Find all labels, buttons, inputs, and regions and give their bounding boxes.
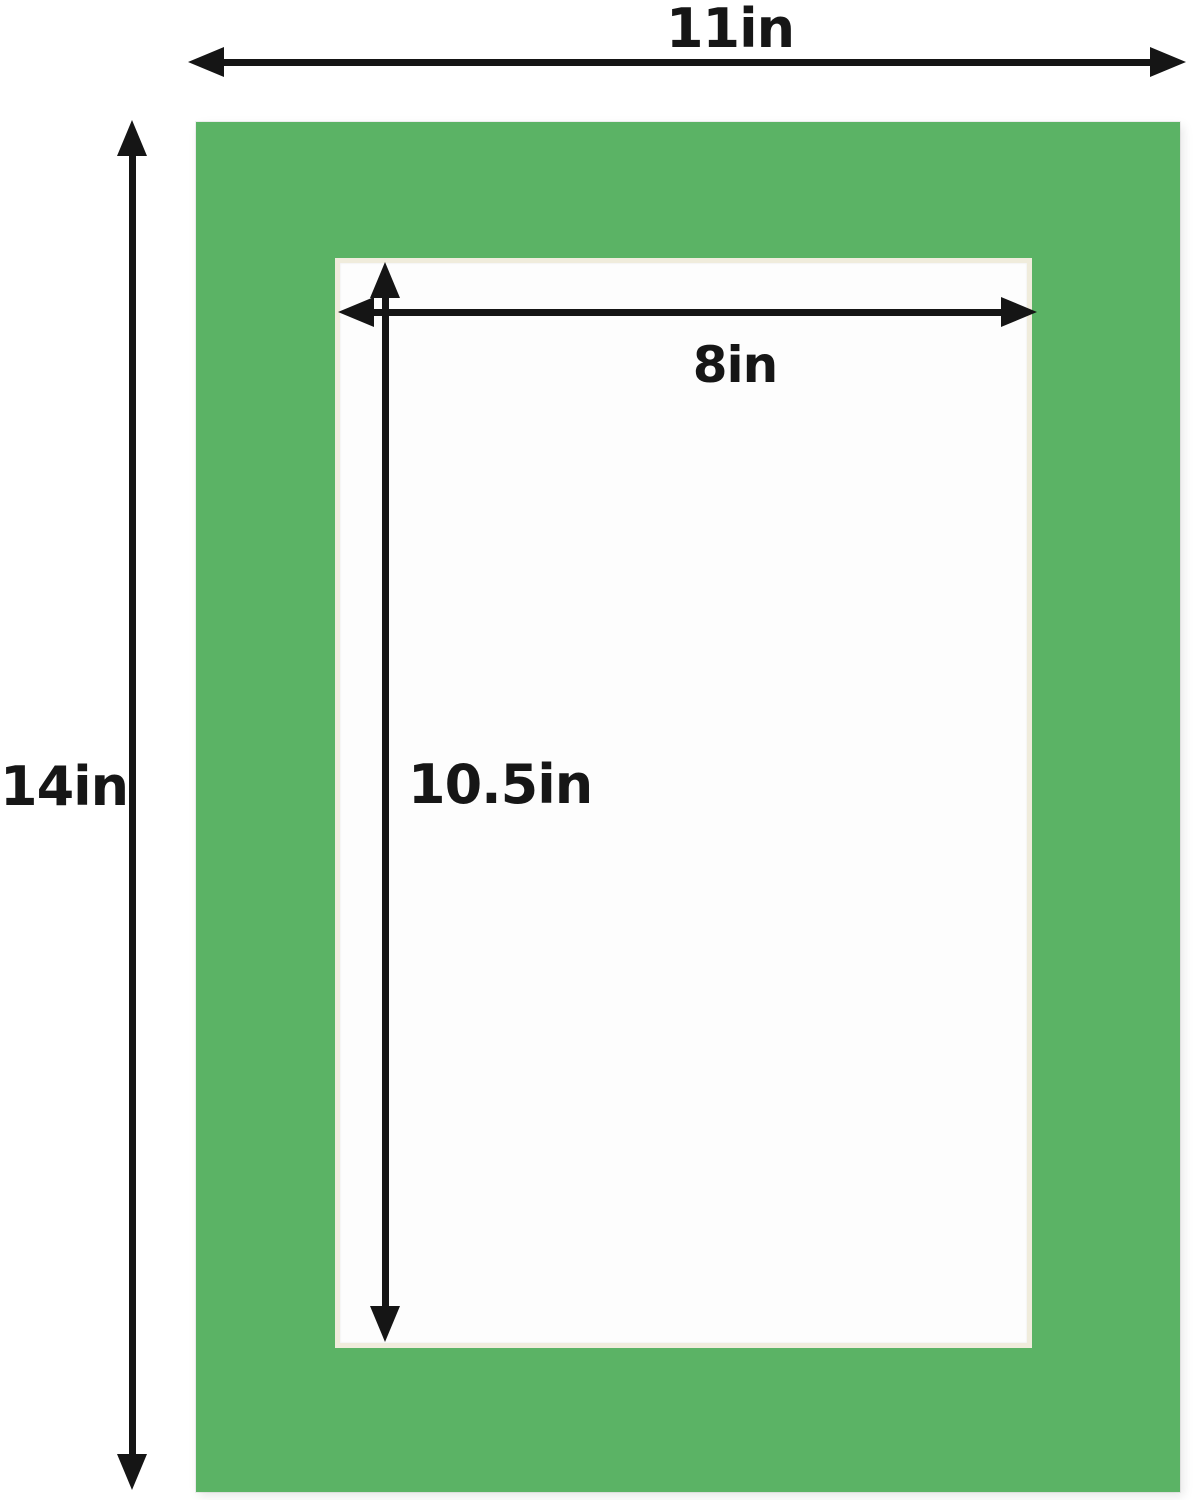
arrow-shaft — [370, 309, 1007, 316]
outer-height-label: 14in — [0, 760, 112, 814]
mat-board — [196, 122, 1180, 1492]
arrowhead-down-icon — [117, 1454, 147, 1490]
opening-width-label: 8in — [650, 340, 820, 390]
outer-width-label: 11in — [630, 2, 830, 56]
diagram-canvas: 11in 14in 8in 10.5in — [0, 0, 1195, 1500]
arrowhead-down-icon — [370, 1306, 400, 1342]
arrowhead-up-icon — [370, 262, 400, 298]
arrow-shaft — [218, 59, 1158, 66]
arrowhead-up-icon — [117, 120, 147, 156]
arrow-shaft — [129, 150, 136, 1460]
arrow-shaft — [382, 292, 389, 1312]
opening-height-label: 10.5in — [408, 758, 592, 812]
arrowhead-left-icon — [188, 47, 224, 77]
arrowhead-right-icon — [1150, 47, 1186, 77]
arrowhead-right-icon — [1001, 297, 1037, 327]
arrowhead-left-icon — [338, 297, 374, 327]
